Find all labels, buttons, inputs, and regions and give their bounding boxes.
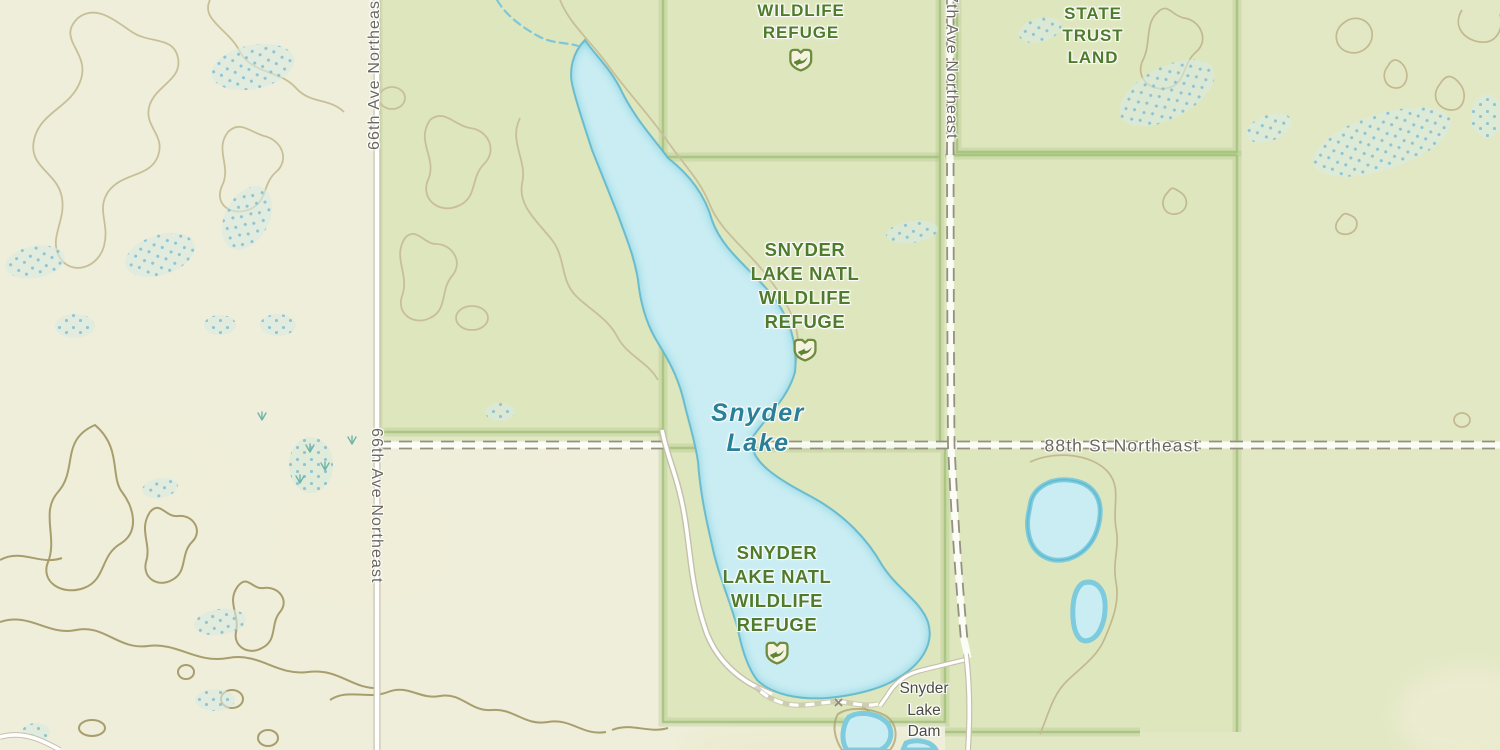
label-snyder-lake-dam: Snyder Lake Dam (899, 678, 948, 743)
label-line: 88th St Northeast (1045, 436, 1200, 456)
label-line: REFUGE (757, 22, 844, 44)
label-wildlife-refuge-top: WILDLIFE REFUGE (757, 0, 844, 79)
road-88th-st (378, 442, 1500, 449)
label-snyder-lake: Snyder Lake (711, 398, 805, 458)
label-line: LAND (1062, 47, 1123, 69)
label-line: SNYDER (751, 238, 860, 262)
label-line: Dam (899, 721, 948, 743)
label-state-trust-land: STATE TRUST LAND (1062, 3, 1123, 69)
wildlife-refuge-icon (763, 641, 790, 666)
wildlife-refuge-icon (788, 48, 815, 73)
map-canvas[interactable]: WILDLIFE REFUGE SNYDER LAKE NATL WILDLIF… (0, 0, 1500, 750)
road-label-66th-ave-lower: 66th Ave Northeast (367, 428, 385, 584)
label-line: LAKE NATL (751, 262, 860, 286)
label-snyder-lake-refuge-north: SNYDER LAKE NATL WILDLIFE REFUGE (751, 238, 860, 369)
label-line: WILDLIFE (723, 589, 832, 613)
road-label-67th-ave: 67th Ave Northeast (942, 0, 960, 140)
label-snyder-lake-refuge-south: SNYDER LAKE NATL WILDLIFE REFUGE (723, 541, 832, 672)
label-line: Snyder (711, 398, 805, 428)
label-line: Lake (711, 428, 805, 458)
label-line: 66th Ave Northeast (368, 428, 385, 584)
label-line: 67th Ave Northeast (943, 0, 960, 140)
label-line: SNYDER (723, 541, 832, 565)
label-line: Lake (899, 700, 948, 722)
label-line: WILDLIFE (757, 0, 844, 22)
label-line: REFUGE (751, 310, 860, 334)
wildlife-refuge-icon (791, 338, 818, 363)
label-line: 66th Ave Northeast (366, 0, 383, 150)
road-label-66th-ave-upper: 66th Ave Northeast (366, 0, 384, 150)
label-line: LAKE NATL (723, 565, 832, 589)
label-line: REFUGE (723, 613, 832, 637)
label-line: STATE (1062, 3, 1123, 25)
road-label-88th-st: 88th St Northeast (1045, 436, 1200, 457)
label-line: Snyder (899, 678, 948, 700)
label-line: TRUST (1062, 25, 1123, 47)
label-line: WILDLIFE (751, 286, 860, 310)
